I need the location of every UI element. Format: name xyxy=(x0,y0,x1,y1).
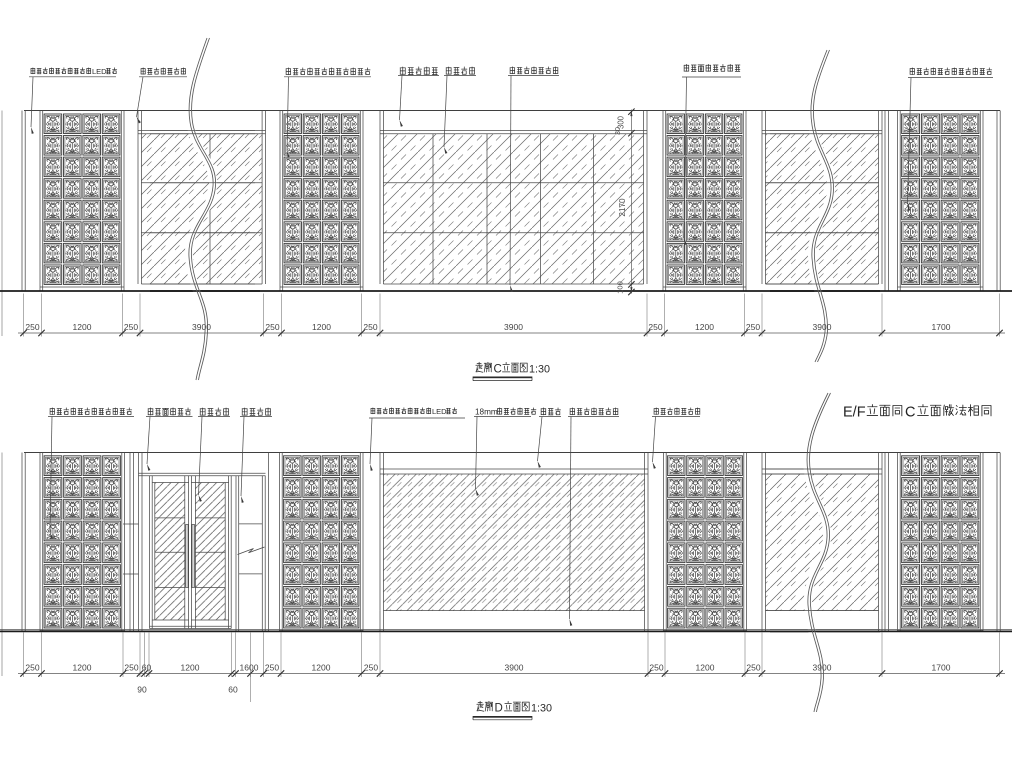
svg-text:C: C xyxy=(494,363,502,375)
svg-text:250: 250 xyxy=(364,663,378,673)
svg-text:1200: 1200 xyxy=(695,322,714,332)
svg-text:250: 250 xyxy=(124,322,138,332)
svg-text:LED: LED xyxy=(92,67,107,76)
svg-text:1600: 1600 xyxy=(240,663,259,673)
svg-text:300: 300 xyxy=(617,115,626,129)
svg-text:3900: 3900 xyxy=(813,663,832,673)
svg-text:LED: LED xyxy=(432,407,447,416)
svg-text:1200: 1200 xyxy=(696,663,715,673)
svg-text:E/F: E/F xyxy=(843,405,866,421)
svg-text:C: C xyxy=(905,405,915,421)
svg-text:1200: 1200 xyxy=(73,322,92,332)
svg-text:250: 250 xyxy=(25,663,39,673)
svg-text:250: 250 xyxy=(648,322,662,332)
svg-text:3900: 3900 xyxy=(504,322,523,332)
svg-text:250: 250 xyxy=(124,663,138,673)
svg-text:3900: 3900 xyxy=(192,322,211,332)
svg-text:18mm: 18mm xyxy=(475,408,498,417)
svg-text:60: 60 xyxy=(228,685,238,695)
svg-text:250: 250 xyxy=(265,322,279,332)
svg-text:60: 60 xyxy=(142,663,152,673)
svg-text:1700: 1700 xyxy=(932,663,951,673)
svg-text:250: 250 xyxy=(649,663,663,673)
svg-text:250: 250 xyxy=(265,663,279,673)
svg-text:3900: 3900 xyxy=(813,322,832,332)
svg-text:250: 250 xyxy=(746,663,760,673)
svg-text:100: 100 xyxy=(616,281,625,294)
svg-text:2170: 2170 xyxy=(618,198,627,217)
svg-text:1200: 1200 xyxy=(312,663,331,673)
svg-text:1700: 1700 xyxy=(932,322,951,332)
svg-text:1:30: 1:30 xyxy=(529,363,550,375)
svg-text:3900: 3900 xyxy=(505,663,524,673)
svg-text:1200: 1200 xyxy=(73,663,92,673)
svg-text:30: 30 xyxy=(613,127,622,135)
svg-text:1:30: 1:30 xyxy=(531,702,552,714)
svg-text:250: 250 xyxy=(746,322,760,332)
svg-text:250: 250 xyxy=(363,322,377,332)
svg-text:1200: 1200 xyxy=(312,322,331,332)
svg-text:D: D xyxy=(495,702,503,714)
svg-text:1200: 1200 xyxy=(181,663,200,673)
svg-text:90: 90 xyxy=(137,685,147,695)
svg-text:250: 250 xyxy=(25,322,39,332)
